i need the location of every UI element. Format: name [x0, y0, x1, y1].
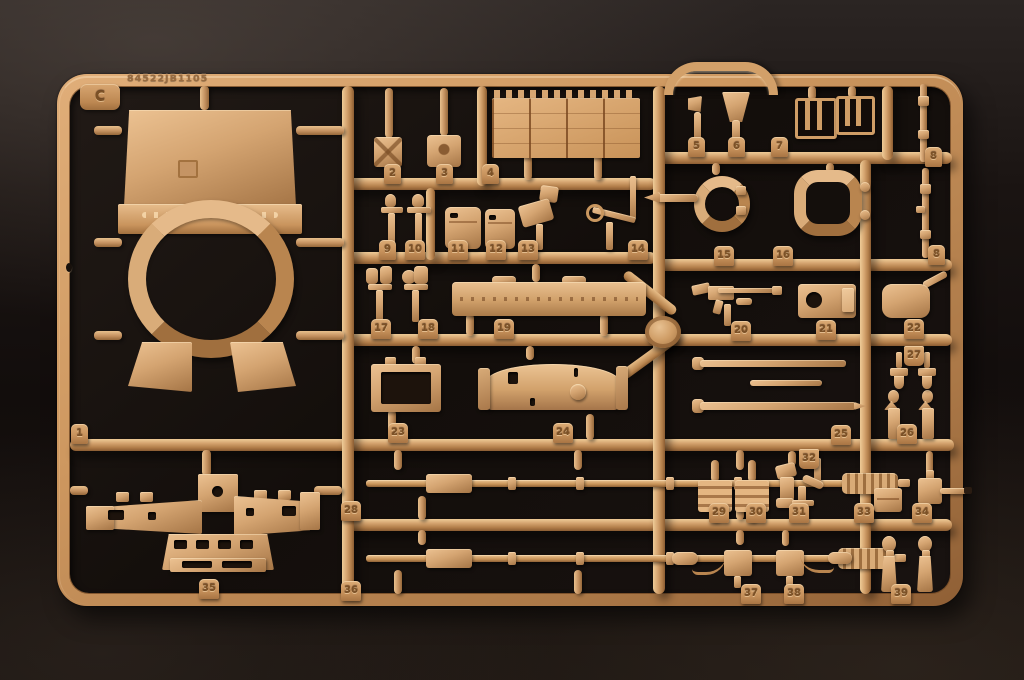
part-number: 33	[857, 508, 871, 518]
part-number-tag: 32	[799, 449, 819, 469]
part-number-tag: 12	[486, 240, 506, 260]
part-number-tag: 31	[789, 503, 809, 523]
part-number: 12	[489, 245, 503, 255]
part-number-tag: 25	[831, 425, 851, 445]
part-number-tag: 30	[746, 503, 766, 523]
part-number: 37	[744, 589, 758, 599]
part-number: 27	[907, 351, 921, 361]
part-number: 24	[556, 428, 570, 438]
part-number: 32	[802, 454, 816, 464]
part-number-tag: 5	[688, 137, 705, 157]
part-number-tag: 22	[904, 319, 924, 339]
part-number-tag: 4	[482, 164, 499, 184]
part-number: 10	[408, 245, 422, 255]
part-number: 11	[451, 245, 465, 255]
part-number-tag: 29	[709, 503, 729, 523]
part-number: 29	[712, 508, 726, 518]
part-number: 14	[631, 245, 645, 255]
part-number-tag: 7	[771, 137, 788, 157]
photo-scene: C 84522JB1105	[0, 0, 1024, 680]
part-number-tag: 36	[341, 581, 361, 601]
part-number: 25	[834, 430, 848, 440]
part-number-tag: 9	[379, 240, 396, 260]
part-number-tag: 15	[714, 246, 734, 266]
part-number-tag: 8	[928, 245, 945, 265]
part-number: 15	[717, 251, 731, 261]
part-number: 26	[900, 429, 914, 439]
part-number-tag: 24	[553, 423, 573, 443]
part-number: 35	[202, 584, 216, 594]
part-number-tag: 3	[436, 164, 453, 184]
part-number-tags: 1234567889101112131415161718192021222324…	[0, 0, 1024, 680]
part-number-tag: 39	[891, 584, 911, 604]
part-number: 20	[734, 326, 748, 336]
part-number: 36	[344, 586, 358, 596]
part-number-tag: 38	[784, 584, 804, 604]
part-number-tag: 19	[494, 319, 514, 339]
part-number: 21	[819, 325, 833, 335]
part-number-tag: 8	[925, 147, 942, 167]
part-number-tag: 23	[388, 423, 408, 443]
part-number: 22	[907, 324, 921, 334]
part-number-tag: 16	[773, 246, 793, 266]
part-number: 23	[391, 428, 405, 438]
part-number-tag: 28	[341, 501, 361, 521]
part-number-tag: 1	[71, 424, 88, 444]
part-number: 19	[497, 324, 511, 334]
part-number: 39	[894, 589, 908, 599]
part-number: 38	[787, 589, 801, 599]
part-number: 2	[389, 169, 396, 179]
part-number-tag: 13	[518, 240, 538, 260]
part-number: 30	[749, 508, 763, 518]
part-number-tag: 14	[628, 240, 648, 260]
part-number-tag: 17	[371, 319, 391, 339]
part-number-tag: 18	[418, 319, 438, 339]
part-number: 18	[421, 324, 435, 334]
part-number-tag: 34	[912, 503, 932, 523]
part-number-tag: 6	[728, 137, 745, 157]
part-number: 4	[487, 169, 494, 179]
part-number: 7	[776, 142, 783, 152]
part-number-tag: 2	[384, 164, 401, 184]
part-number-tag: 33	[854, 503, 874, 523]
part-number-tag: 35	[199, 579, 219, 599]
part-number: 34	[915, 508, 929, 518]
part-number-tag: 27	[904, 346, 924, 366]
part-number: 9	[384, 245, 391, 255]
part-number: 13	[521, 245, 535, 255]
part-number-tag: 10	[405, 240, 425, 260]
part-number: 8	[933, 250, 940, 260]
part-number: 28	[344, 506, 358, 516]
part-number: 31	[792, 508, 806, 518]
part-number: 1	[76, 429, 83, 439]
part-number: 5	[693, 142, 700, 152]
part-number: 16	[776, 251, 790, 261]
part-number-tag: 37	[741, 584, 761, 604]
part-number: 6	[733, 142, 740, 152]
part-number: 8	[930, 152, 937, 162]
part-number-tag: 11	[448, 240, 468, 260]
part-number-tag: 21	[816, 320, 836, 340]
part-number-tag: 20	[731, 321, 751, 341]
part-number-tag: 26	[897, 424, 917, 444]
part-number: 3	[441, 169, 448, 179]
part-number: 17	[374, 324, 388, 334]
